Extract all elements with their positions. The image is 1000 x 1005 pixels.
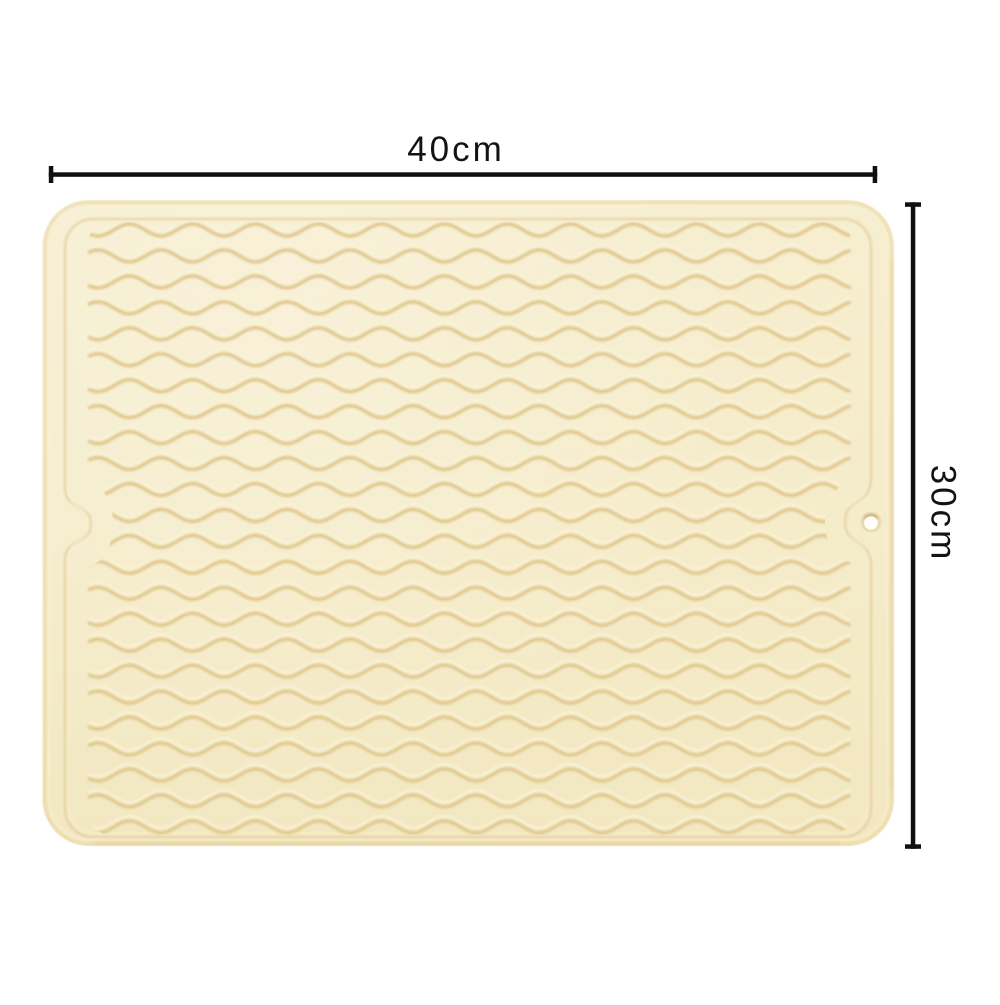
svg-text:40cm: 40cm <box>407 130 505 169</box>
svg-text:30cm: 30cm <box>924 465 963 563</box>
